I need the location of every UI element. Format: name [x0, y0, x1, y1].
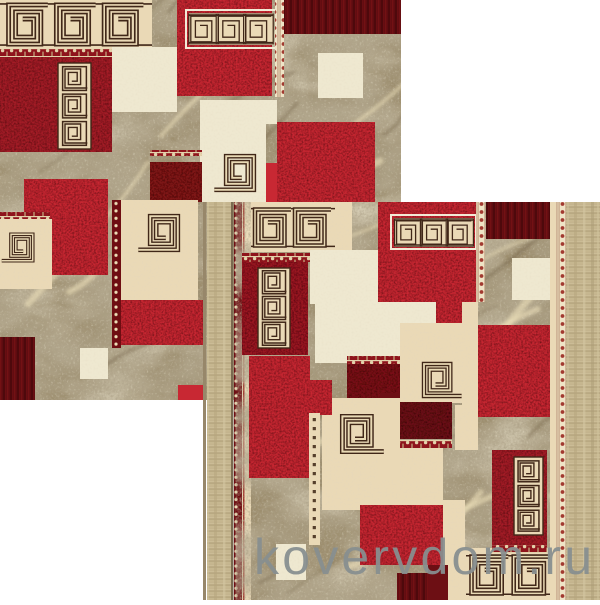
svg-text:kovervdom.ru: kovervdom.ru	[254, 529, 595, 585]
